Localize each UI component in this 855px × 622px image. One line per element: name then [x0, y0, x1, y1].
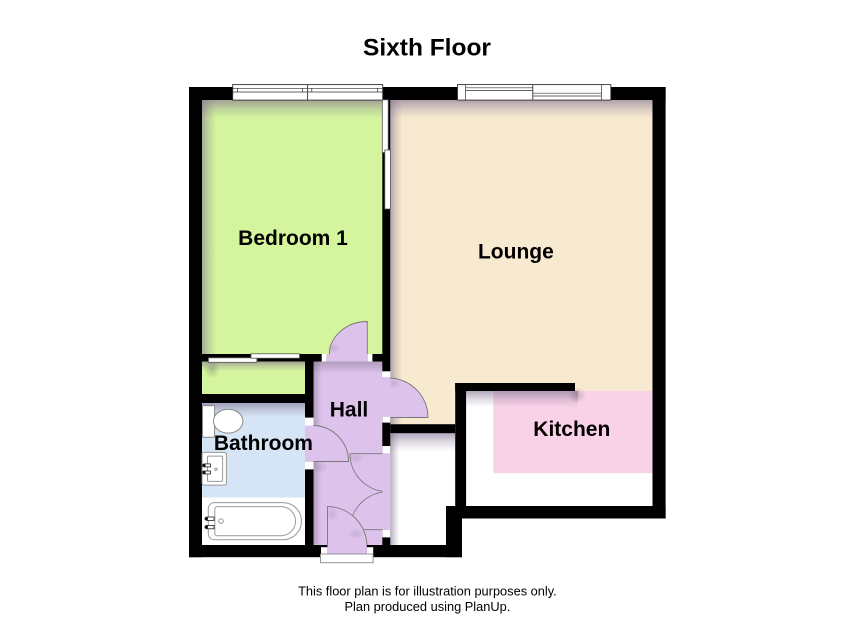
svg-text:Plan produced using PlanUp.: Plan produced using PlanUp.: [345, 599, 511, 614]
svg-text:Bedroom 1: Bedroom 1: [238, 227, 348, 250]
svg-text:Kitchen: Kitchen: [533, 418, 610, 441]
svg-text:Bathroom: Bathroom: [214, 432, 313, 455]
svg-text:This floor plan is for illustr: This floor plan is for illustration purp…: [298, 584, 557, 599]
svg-text:Sixth Floor: Sixth Floor: [363, 35, 491, 62]
svg-text:Hall: Hall: [330, 399, 369, 422]
svg-text:Lounge: Lounge: [478, 240, 554, 263]
